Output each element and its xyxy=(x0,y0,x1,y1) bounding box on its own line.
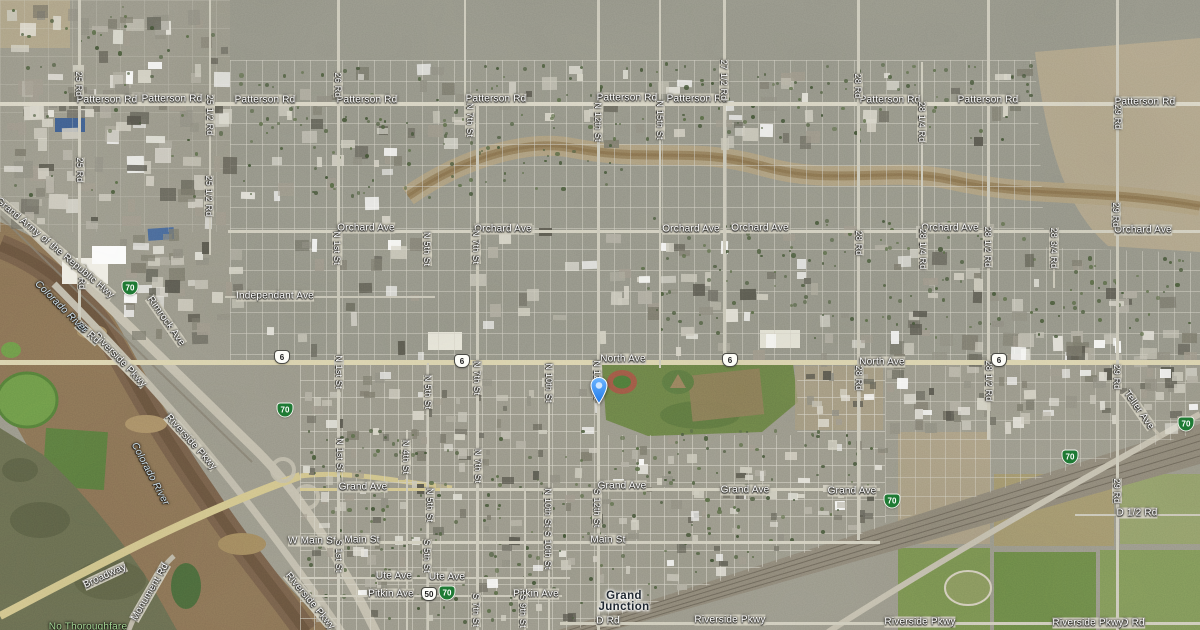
building xyxy=(759,124,772,137)
building xyxy=(527,289,539,301)
building xyxy=(1043,410,1054,416)
building xyxy=(958,407,971,415)
tree xyxy=(312,191,315,194)
tree xyxy=(804,444,807,447)
tree xyxy=(111,190,115,194)
building xyxy=(381,581,387,588)
building xyxy=(456,94,467,104)
tree xyxy=(677,453,679,455)
building xyxy=(693,284,705,296)
street-label-vertical: 25 Rd xyxy=(77,264,87,289)
building xyxy=(37,11,45,20)
building xyxy=(65,199,80,213)
tree xyxy=(580,66,583,69)
tree xyxy=(687,236,691,240)
farmland xyxy=(898,432,1200,630)
road-label: Orchard Ave xyxy=(1114,225,1172,236)
building xyxy=(577,74,583,81)
tree xyxy=(87,36,90,39)
building xyxy=(875,245,888,251)
tree xyxy=(789,87,793,91)
building xyxy=(131,263,146,273)
tree xyxy=(961,229,964,232)
building xyxy=(190,123,199,132)
road-segment xyxy=(857,0,860,540)
tree xyxy=(378,430,382,434)
tree xyxy=(243,180,245,182)
building xyxy=(442,82,455,94)
building xyxy=(19,22,35,35)
tree xyxy=(882,220,886,224)
tree xyxy=(821,114,824,117)
tree xyxy=(417,594,419,596)
building xyxy=(428,615,433,621)
tree xyxy=(379,592,382,595)
building xyxy=(604,139,619,147)
building xyxy=(1013,336,1022,348)
road-label: Pitkin Ave xyxy=(513,589,559,600)
building xyxy=(365,577,376,587)
building xyxy=(322,399,332,405)
building xyxy=(1011,346,1026,360)
building xyxy=(610,271,625,281)
building xyxy=(962,421,971,430)
interstate-business-shield: 70 xyxy=(1179,418,1194,431)
road-label: Patterson Rd xyxy=(235,95,296,106)
building xyxy=(877,451,885,455)
road-label: Patterson Rd xyxy=(958,95,1019,106)
building xyxy=(154,296,164,308)
building xyxy=(1147,368,1153,377)
tree xyxy=(1140,332,1144,336)
tree xyxy=(171,155,173,157)
building xyxy=(404,588,413,599)
tree xyxy=(343,69,347,73)
building xyxy=(949,367,960,377)
building xyxy=(807,396,814,405)
building xyxy=(509,81,516,93)
building xyxy=(638,291,652,304)
building xyxy=(781,73,791,85)
tree xyxy=(510,596,513,599)
building xyxy=(859,510,865,517)
street-label-vertical: 28 1/2 Rd xyxy=(984,361,994,402)
building xyxy=(400,557,405,567)
building xyxy=(677,543,687,552)
tree xyxy=(250,193,252,195)
building xyxy=(147,17,162,30)
building xyxy=(954,410,961,421)
building xyxy=(694,489,704,499)
building xyxy=(783,234,795,241)
building xyxy=(1148,353,1160,368)
tree xyxy=(846,434,849,437)
tree xyxy=(485,504,488,507)
building xyxy=(648,307,660,320)
tree xyxy=(602,524,606,528)
building xyxy=(812,401,822,407)
tree xyxy=(528,456,531,459)
tree xyxy=(283,74,287,78)
tree xyxy=(857,69,861,73)
tree xyxy=(1166,285,1169,288)
city-label-line1: Grand xyxy=(606,590,642,602)
building xyxy=(481,379,491,387)
tree xyxy=(600,564,603,567)
tree xyxy=(536,556,540,560)
building xyxy=(923,277,938,284)
building xyxy=(686,334,698,339)
tree xyxy=(863,119,867,123)
tree xyxy=(463,620,467,624)
road-segment xyxy=(1075,514,1200,516)
building xyxy=(721,241,728,254)
building xyxy=(20,198,38,213)
tree xyxy=(590,517,592,519)
building xyxy=(14,160,34,177)
tree xyxy=(1030,311,1033,314)
building xyxy=(847,525,857,530)
tree xyxy=(1136,275,1139,278)
building xyxy=(364,392,375,398)
street-label-vertical: 25 1/2 Rd xyxy=(205,95,215,136)
tree xyxy=(760,255,763,258)
building xyxy=(1021,413,1030,424)
building xyxy=(771,513,777,520)
tree xyxy=(598,87,602,91)
building xyxy=(1140,348,1157,359)
road-label: W Main St xyxy=(288,536,336,547)
building xyxy=(391,246,407,259)
tree xyxy=(604,171,608,175)
tree xyxy=(489,552,494,557)
tree xyxy=(365,507,368,510)
building xyxy=(1102,408,1111,413)
tree xyxy=(978,321,982,325)
tree xyxy=(114,108,118,112)
building xyxy=(147,62,161,69)
tree xyxy=(910,295,912,297)
building xyxy=(975,342,984,352)
building xyxy=(400,502,406,509)
building xyxy=(338,260,347,270)
tree xyxy=(774,271,776,273)
tree xyxy=(885,98,888,101)
tree xyxy=(51,175,53,177)
road-segment xyxy=(0,102,1200,106)
building xyxy=(217,314,231,320)
building xyxy=(371,610,378,617)
building xyxy=(62,128,78,139)
building xyxy=(688,517,693,523)
building xyxy=(339,419,343,428)
building xyxy=(984,411,991,417)
tree xyxy=(896,323,899,326)
building xyxy=(705,272,712,286)
tree xyxy=(723,450,726,453)
tree xyxy=(816,474,819,477)
building xyxy=(904,394,916,404)
building xyxy=(520,225,533,235)
tree xyxy=(1090,280,1094,284)
building xyxy=(427,407,432,417)
building xyxy=(681,274,697,282)
building xyxy=(894,264,901,270)
tree xyxy=(821,530,825,534)
building xyxy=(666,87,680,94)
building xyxy=(126,303,135,310)
tree xyxy=(498,504,501,507)
building xyxy=(542,77,557,90)
road-segment xyxy=(78,0,81,320)
tree xyxy=(301,71,304,74)
building xyxy=(81,88,96,97)
tree xyxy=(362,447,364,449)
road-label: Riverside Pkwy xyxy=(694,615,765,626)
building xyxy=(241,192,255,199)
tree xyxy=(443,119,446,122)
street-label-vertical: N 1st St xyxy=(335,438,345,472)
building xyxy=(1144,404,1152,410)
tree xyxy=(357,191,361,195)
building xyxy=(137,285,152,293)
tree xyxy=(620,168,623,171)
road-label: Orchard Ave xyxy=(662,224,720,235)
building xyxy=(195,206,203,215)
building xyxy=(363,376,372,385)
tree xyxy=(1163,257,1167,261)
tree xyxy=(326,439,329,442)
road-segment xyxy=(1116,0,1119,630)
building xyxy=(347,431,359,440)
tree xyxy=(424,452,427,455)
building xyxy=(168,229,178,241)
building xyxy=(412,537,420,545)
building xyxy=(122,215,141,225)
tree xyxy=(881,63,885,67)
tree xyxy=(392,442,396,446)
road-label: Grand Ave xyxy=(339,482,388,493)
road-label: Pitkin Ave xyxy=(368,589,414,600)
tree xyxy=(435,533,438,536)
building xyxy=(133,235,145,246)
building xyxy=(1075,347,1091,360)
building xyxy=(805,110,813,122)
building xyxy=(373,517,381,523)
building xyxy=(33,5,47,18)
tree xyxy=(351,434,355,438)
road-segment xyxy=(560,622,1200,625)
building xyxy=(891,331,899,344)
tree xyxy=(588,125,592,129)
tree xyxy=(766,496,770,500)
building xyxy=(921,329,930,335)
building xyxy=(382,216,390,225)
tree xyxy=(496,85,498,87)
building xyxy=(716,120,732,128)
building xyxy=(791,71,805,80)
tree xyxy=(314,191,318,195)
building xyxy=(378,575,387,585)
street-label-vertical: N 1st St xyxy=(332,231,342,265)
tree xyxy=(752,556,754,558)
building xyxy=(170,104,186,111)
tree xyxy=(384,436,387,439)
tree xyxy=(454,520,458,524)
building xyxy=(1008,354,1021,365)
tree xyxy=(865,319,868,322)
tree xyxy=(845,88,847,90)
tree xyxy=(447,449,450,452)
tree xyxy=(707,514,711,518)
building xyxy=(992,107,1001,121)
building xyxy=(322,497,327,504)
tree xyxy=(380,548,383,551)
tree xyxy=(497,146,500,149)
building xyxy=(593,555,599,561)
tree xyxy=(550,117,554,121)
building xyxy=(195,279,208,289)
building xyxy=(214,156,220,172)
tree xyxy=(684,65,687,68)
tree xyxy=(925,328,927,330)
tree xyxy=(1094,265,1097,268)
tree xyxy=(888,222,891,225)
building xyxy=(302,242,312,248)
tree xyxy=(496,475,499,478)
tree xyxy=(724,225,727,228)
building xyxy=(47,74,62,80)
location-pin[interactable] xyxy=(588,376,610,405)
tree xyxy=(347,508,352,513)
building xyxy=(539,430,547,434)
building xyxy=(637,277,650,282)
tree xyxy=(1081,310,1085,314)
tree xyxy=(503,179,506,182)
tree xyxy=(258,84,261,87)
building xyxy=(694,513,699,518)
tree xyxy=(851,481,854,484)
building xyxy=(1156,392,1164,400)
building xyxy=(852,340,866,349)
building xyxy=(441,390,446,398)
building xyxy=(398,341,405,355)
building xyxy=(360,488,366,494)
road-label-diagonal: Riverside Pkwy xyxy=(283,570,337,630)
building xyxy=(158,141,171,149)
building xyxy=(146,176,154,186)
tree xyxy=(497,136,501,140)
building xyxy=(820,314,831,326)
building xyxy=(1078,353,1087,365)
building xyxy=(923,409,932,414)
tree xyxy=(1163,291,1165,293)
building xyxy=(484,526,489,532)
tree xyxy=(1089,265,1093,269)
tree xyxy=(388,617,391,620)
tree xyxy=(794,81,797,84)
building xyxy=(394,156,402,166)
road-segment xyxy=(225,296,435,298)
building xyxy=(863,513,873,519)
street-label-vertical: N 12th St xyxy=(593,102,603,141)
building xyxy=(375,372,385,382)
building xyxy=(1123,291,1137,298)
building xyxy=(542,378,549,387)
building xyxy=(420,80,427,92)
tree xyxy=(365,117,368,120)
building xyxy=(180,110,194,127)
building xyxy=(358,74,364,80)
tree xyxy=(907,247,910,250)
building xyxy=(331,95,336,100)
tree xyxy=(705,498,709,502)
tree xyxy=(751,115,755,119)
building xyxy=(501,560,509,567)
building xyxy=(797,272,806,279)
tree xyxy=(342,594,346,598)
tree xyxy=(1022,74,1026,78)
tree xyxy=(820,91,824,95)
building xyxy=(433,526,444,534)
building xyxy=(1109,301,1124,306)
tree xyxy=(947,221,951,225)
tree xyxy=(565,456,567,458)
map-canvas[interactable]: Grand Junction Patterson RdPatterson RdP… xyxy=(0,0,1200,630)
satellite-terrain xyxy=(0,0,1200,630)
tree xyxy=(774,285,776,287)
building xyxy=(498,97,510,110)
tree xyxy=(733,506,736,509)
building xyxy=(606,233,621,243)
road-label: Orchard Ave xyxy=(731,223,789,234)
building xyxy=(418,352,424,360)
building xyxy=(618,518,626,524)
tree xyxy=(649,83,653,87)
tree xyxy=(821,465,825,469)
tree xyxy=(737,525,740,528)
building xyxy=(828,373,833,381)
building xyxy=(951,88,960,94)
tree xyxy=(692,481,695,484)
tree xyxy=(718,107,721,110)
building xyxy=(730,508,738,514)
building xyxy=(875,465,882,470)
road-label-diagonal: Rimrock Ave xyxy=(145,294,187,348)
tree xyxy=(1054,335,1058,339)
tree xyxy=(26,66,30,70)
building xyxy=(413,411,424,420)
tree xyxy=(746,431,748,433)
building xyxy=(490,304,502,317)
tree xyxy=(945,277,949,281)
building xyxy=(384,148,397,156)
tree xyxy=(306,117,309,120)
building xyxy=(908,319,921,327)
building xyxy=(992,321,1004,327)
building xyxy=(31,90,39,102)
tree xyxy=(355,474,359,478)
building xyxy=(1070,331,1082,343)
tree xyxy=(369,429,373,433)
building xyxy=(311,119,323,129)
building xyxy=(840,389,847,397)
building xyxy=(867,492,874,501)
street-label-vertical: S 12th St xyxy=(592,489,602,528)
interstate-business-shield: 70 xyxy=(1063,451,1078,464)
building xyxy=(887,384,894,392)
building xyxy=(973,290,983,303)
